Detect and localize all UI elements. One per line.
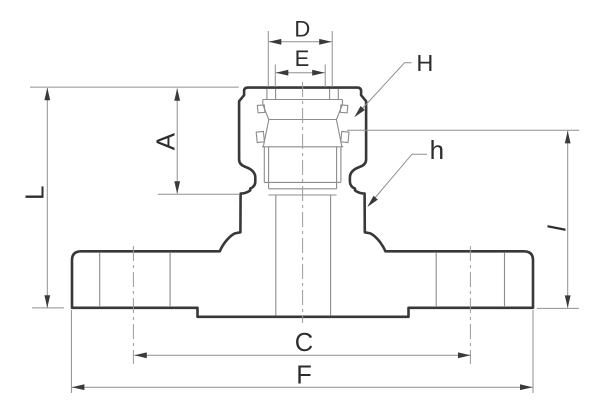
svg-text:C: C	[295, 329, 313, 357]
svg-text:E: E	[295, 46, 310, 71]
svg-text:h: h	[430, 135, 444, 165]
svg-text:F: F	[296, 361, 312, 389]
svg-text:A: A	[150, 132, 180, 150]
svg-text:H: H	[416, 50, 433, 76]
svg-text:L: L	[20, 186, 50, 200]
svg-text:D: D	[294, 16, 310, 41]
